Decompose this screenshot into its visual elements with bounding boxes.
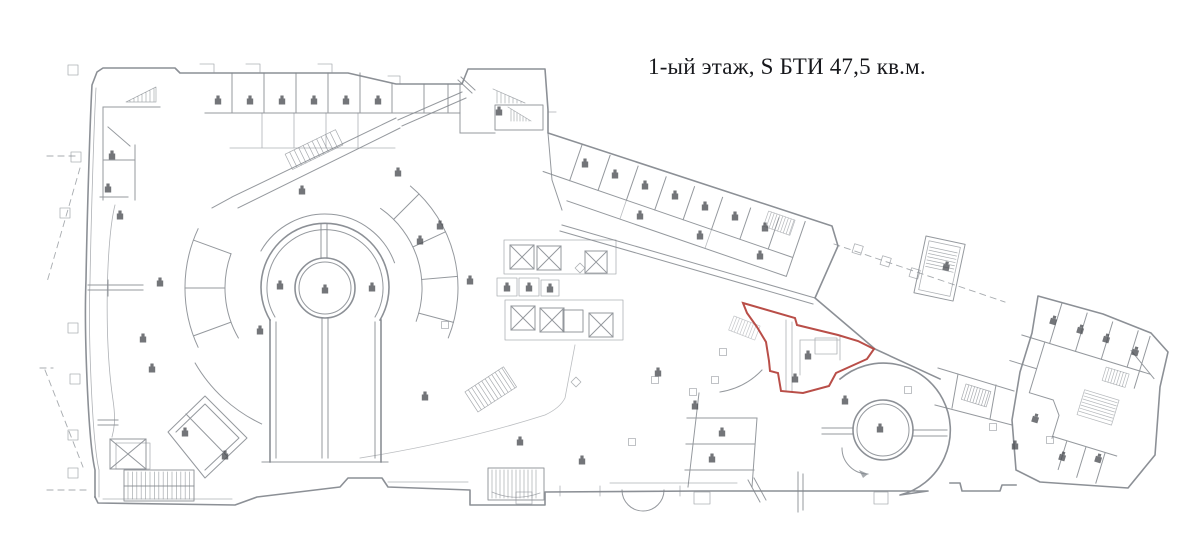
keyhole-core — [261, 223, 389, 462]
east-block-interior — [983, 294, 1167, 491]
plan-lines — [40, 64, 1168, 512]
diagonal-wing — [537, 133, 815, 304]
fixture-glyphs — [105, 96, 1140, 465]
unit-interior — [729, 316, 840, 392]
north-stair-block — [458, 77, 556, 133]
radial-rooms — [185, 186, 575, 458]
west-block-interior — [88, 64, 460, 501]
diagonal-stair-corridor — [212, 92, 466, 208]
reference-marks — [40, 65, 1005, 490]
highlighted-unit-outline[interactable] — [743, 303, 874, 393]
building-outline — [85, 68, 950, 505]
rotunda — [822, 400, 947, 478]
east-block-outline — [983, 294, 1168, 491]
elevator-banks — [497, 240, 623, 340]
tower — [914, 236, 965, 301]
floor-plan-svg — [0, 0, 1200, 558]
floor-plan-page: 1-ый этаж, S БТИ 47,5 кв.м. — [0, 0, 1200, 558]
